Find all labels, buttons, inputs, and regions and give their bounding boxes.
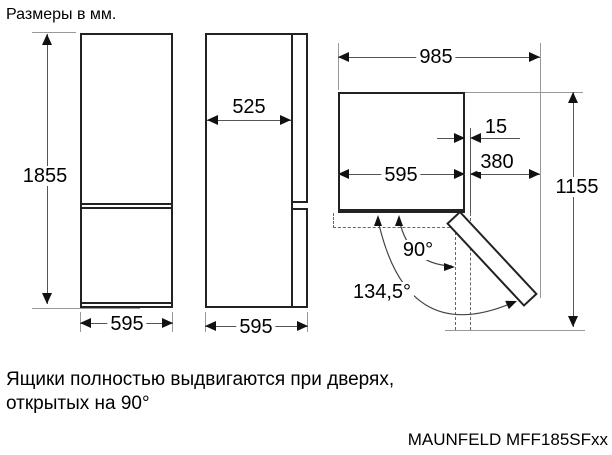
- dim-label-door-clearance: 380: [477, 152, 516, 172]
- front-view-cabinet-outline: [80, 33, 173, 308]
- extension-line: [540, 43, 541, 298]
- dim-arrow-right: [454, 133, 465, 143]
- dimension-drawing: Размеры в мм. 1855 595 525: [0, 0, 612, 455]
- dim-arrow-left: [338, 52, 349, 62]
- model-name: MAUNFELD MFF185SFxx: [408, 430, 608, 450]
- dim-arrow-down: [568, 316, 578, 327]
- door-open90-dashed-left: [455, 227, 456, 330]
- front-view-door-divider-upper: [82, 203, 171, 205]
- dim-arrow-up: [42, 34, 52, 45]
- dim-arrow-left: [338, 169, 349, 179]
- dimension-line-depth-door-open: [573, 92, 574, 327]
- side-view-lower-door: [291, 208, 308, 308]
- extension-line: [32, 308, 140, 309]
- extension-line: [338, 43, 339, 90]
- dim-arrow-down: [42, 293, 52, 304]
- dim-label-depth-door-open: 1155: [552, 177, 601, 197]
- dimension-line-hinge-offset: [437, 138, 454, 139]
- angle-label-drawers: 90°: [400, 240, 436, 260]
- dim-arrow-right: [529, 52, 540, 62]
- dim-label-front-width: 595: [107, 314, 146, 334]
- dim-arrow-right: [162, 318, 173, 328]
- door-closed-dashed-left: [333, 213, 334, 228]
- arc-arrow-up: [374, 215, 382, 226]
- dim-label-side-total-depth: 595: [236, 317, 275, 337]
- side-view-upper-door: [291, 33, 308, 203]
- dim-label-hinge-offset: 15: [482, 117, 510, 137]
- front-view-plinth-line: [82, 302, 171, 304]
- side-view-cabinet-outline: [205, 33, 293, 308]
- open-door-outline: [448, 212, 537, 306]
- dim-arrow-right: [454, 169, 465, 179]
- dim-arrow-left: [207, 115, 218, 125]
- dim-arrow-right: [297, 321, 308, 331]
- dim-arrow-left: [470, 133, 481, 143]
- arc-arrow-right: [444, 263, 455, 271]
- footnote-line-1: Ящики полностью выдвигаются при дверях,: [6, 369, 394, 391]
- dim-label-total-width: 985: [416, 47, 455, 67]
- door-closed-dashed-front: [333, 227, 455, 228]
- extension-line: [465, 92, 583, 93]
- dim-arrow-right: [529, 169, 540, 179]
- arc-arrow-up: [395, 215, 403, 226]
- top-view-cabinet-outline: [338, 92, 465, 213]
- dim-label-side-depth: 525: [229, 97, 268, 117]
- footnote-line-2: открытых на 90°: [6, 393, 150, 415]
- dim-arrow-left: [80, 318, 91, 328]
- dimension-line-depth: [207, 120, 291, 121]
- dim-label-front-height: 1855: [20, 166, 71, 186]
- dim-label-top-body-width: 595: [381, 165, 420, 185]
- extension-line: [445, 330, 585, 331]
- front-view-door-divider-lower: [82, 207, 171, 209]
- extension-line: [32, 32, 76, 33]
- arc-arrow-to-door: [505, 301, 517, 309]
- dim-arrow-left: [205, 321, 216, 331]
- page-title: Размеры в мм.: [6, 6, 116, 24]
- angle-label-max-open: 134,5°: [350, 282, 414, 302]
- dim-arrow-up: [568, 92, 578, 103]
- door-open90-dashed-right: [470, 213, 471, 330]
- dim-arrow-right: [280, 115, 291, 125]
